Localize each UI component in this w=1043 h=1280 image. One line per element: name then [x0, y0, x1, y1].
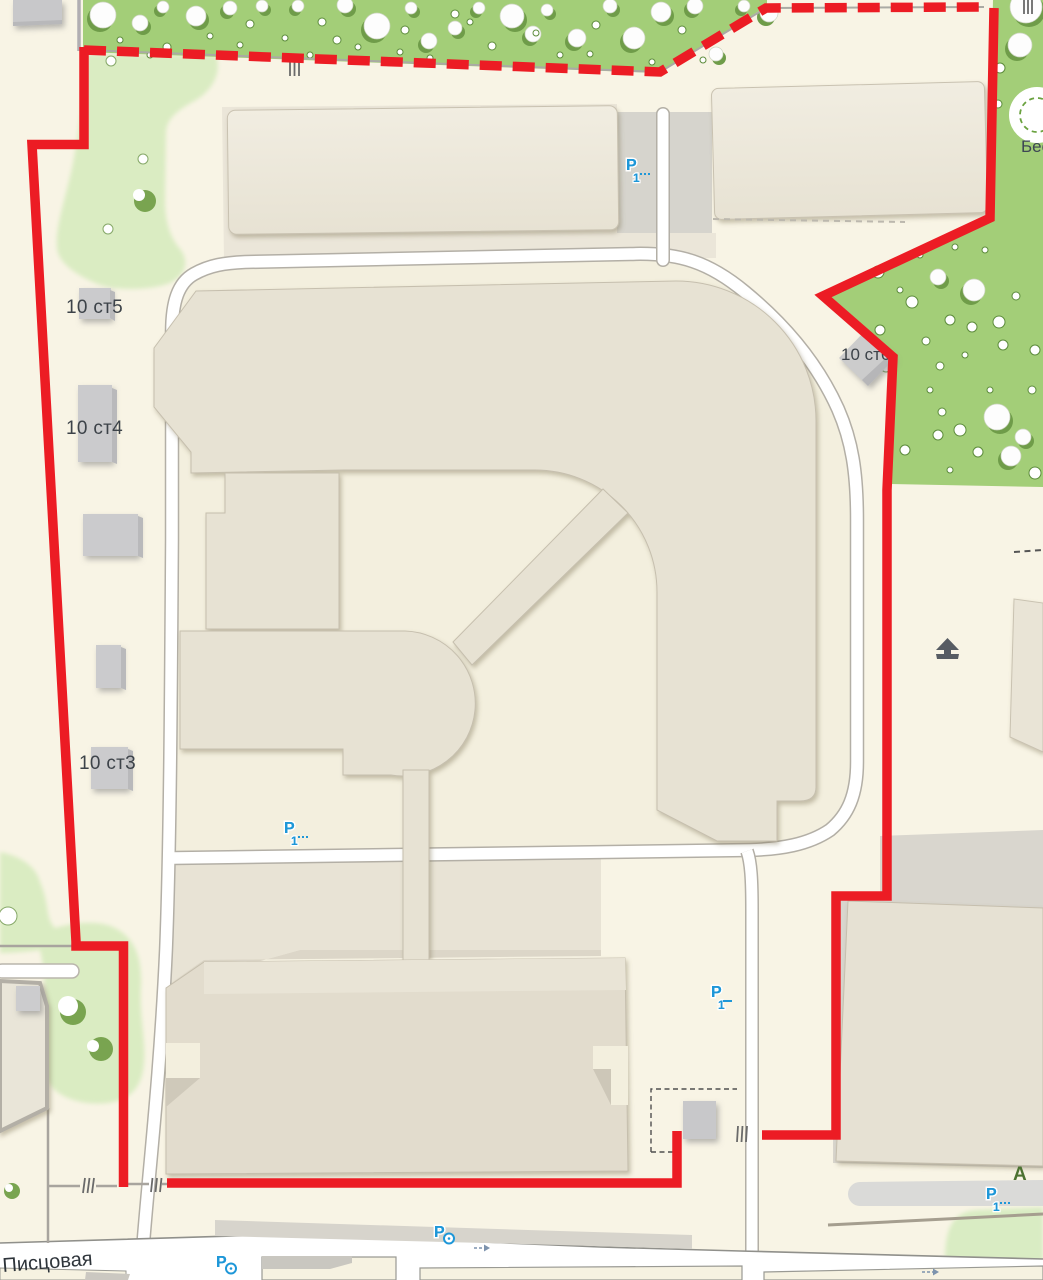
svg-text:1: 1	[633, 171, 640, 185]
svg-text:А: А	[1013, 1164, 1027, 1185]
svg-text:10 ст4: 10 ст4	[66, 418, 123, 439]
svg-text:1: 1	[291, 834, 298, 848]
svg-text:10 ст3: 10 ст3	[79, 753, 136, 774]
svg-text:Бес: Бес	[1021, 137, 1043, 156]
svg-text:1: 1	[993, 1200, 1000, 1214]
svg-text:10 ст5: 10 ст5	[66, 297, 123, 318]
